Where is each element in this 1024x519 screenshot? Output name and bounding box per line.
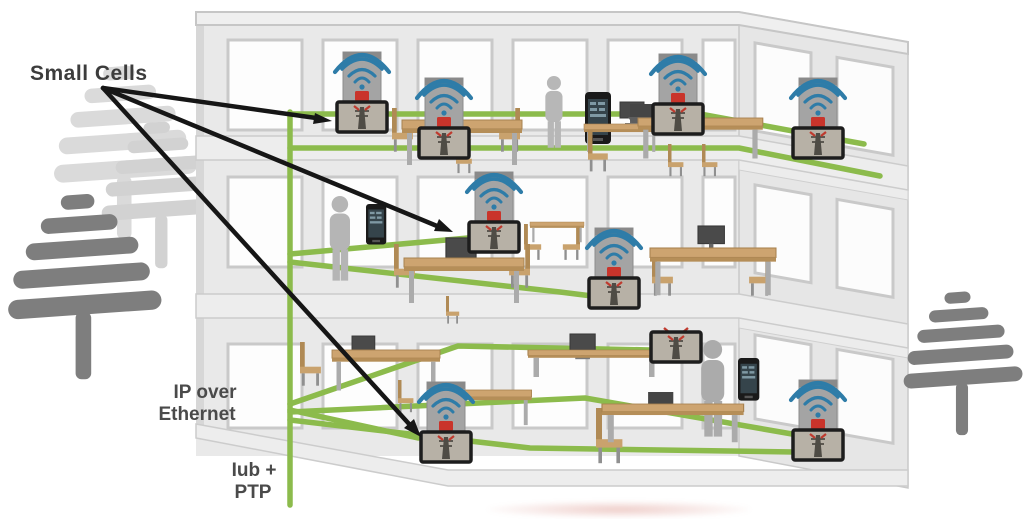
smartphone-icon <box>738 358 759 401</box>
left-wall-edge <box>196 12 204 428</box>
ip-over-ethernet-label-line2: Ethernet <box>158 404 236 425</box>
ip-over-ethernet-label-line1: IP over <box>173 382 237 403</box>
small-cell <box>791 380 845 460</box>
diagram-stage: Small Cells IP over Ethernet Iub + PTP <box>0 0 1024 519</box>
small-cell <box>467 172 521 252</box>
small-cell <box>651 54 705 134</box>
scene-svg: Small Cells IP over Ethernet Iub + PTP <box>0 0 1024 519</box>
small-cell <box>417 78 471 158</box>
small-cell <box>587 228 641 308</box>
smartphone-icon <box>366 204 386 245</box>
small-cell <box>791 78 845 158</box>
iub-ptp-label-line2: PTP <box>235 482 272 503</box>
iub-ptp-label-line1: Iub + <box>232 460 277 481</box>
small-cell <box>419 382 473 462</box>
small-cells-label: Small Cells <box>30 62 148 85</box>
tree-icon <box>898 288 1023 435</box>
cropped-caption <box>488 501 750 518</box>
small-cell <box>335 52 389 132</box>
small-cell-frame <box>651 328 701 362</box>
